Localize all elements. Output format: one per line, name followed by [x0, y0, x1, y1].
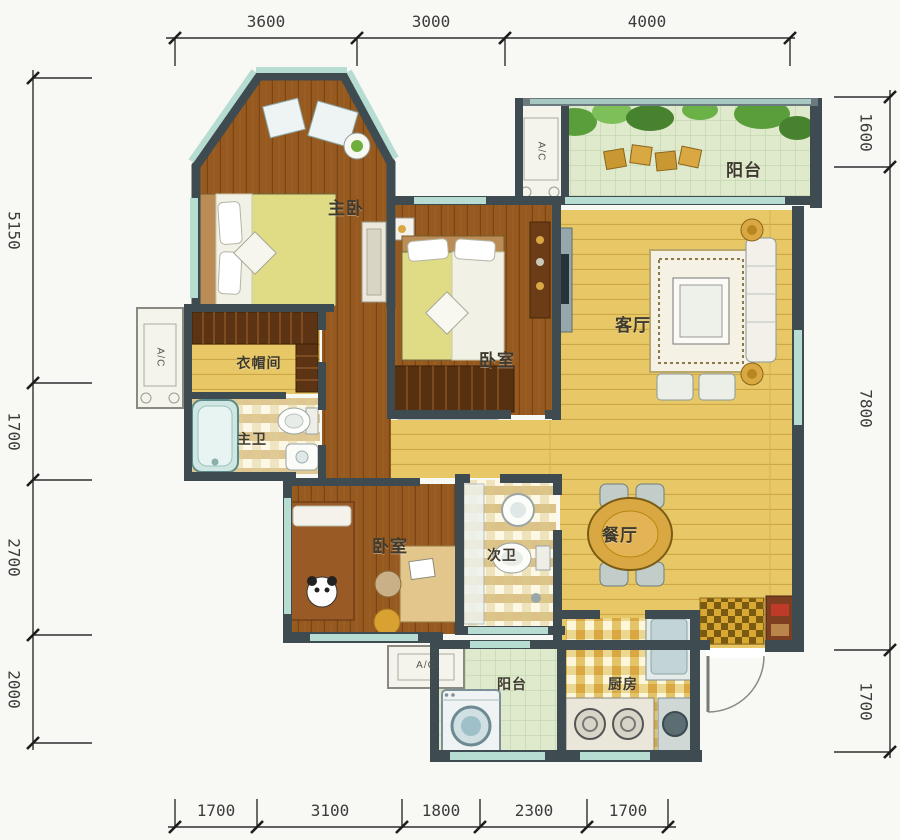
entry-door	[706, 648, 766, 712]
stove	[566, 698, 654, 752]
coffee-table	[673, 278, 729, 344]
floor-plan-page: 主卧 阳台 客厅 卧室 衣帽间 主卫 卧室 次卫 餐厅 阳台 厨房 A/C A/…	[0, 0, 900, 840]
center-bedroom-wardrobe	[394, 366, 514, 412]
ac-unit-bottom	[388, 646, 464, 688]
dining-set	[588, 484, 672, 586]
floor-plan-drawing	[0, 0, 900, 840]
bottom-bed	[290, 502, 354, 620]
center-bedroom-cabinet	[530, 222, 550, 318]
master-sink	[286, 444, 318, 470]
kitchen-counter	[658, 698, 692, 752]
master-toilet	[278, 408, 318, 434]
ac-unit-left	[137, 308, 183, 408]
master-bed	[200, 194, 336, 306]
master-tv-panel	[362, 222, 386, 302]
washing-machine	[442, 690, 500, 754]
bathtub	[192, 400, 238, 472]
entry-doormat	[700, 598, 764, 644]
center-bed	[390, 218, 504, 360]
ac-unit-top	[517, 102, 565, 202]
